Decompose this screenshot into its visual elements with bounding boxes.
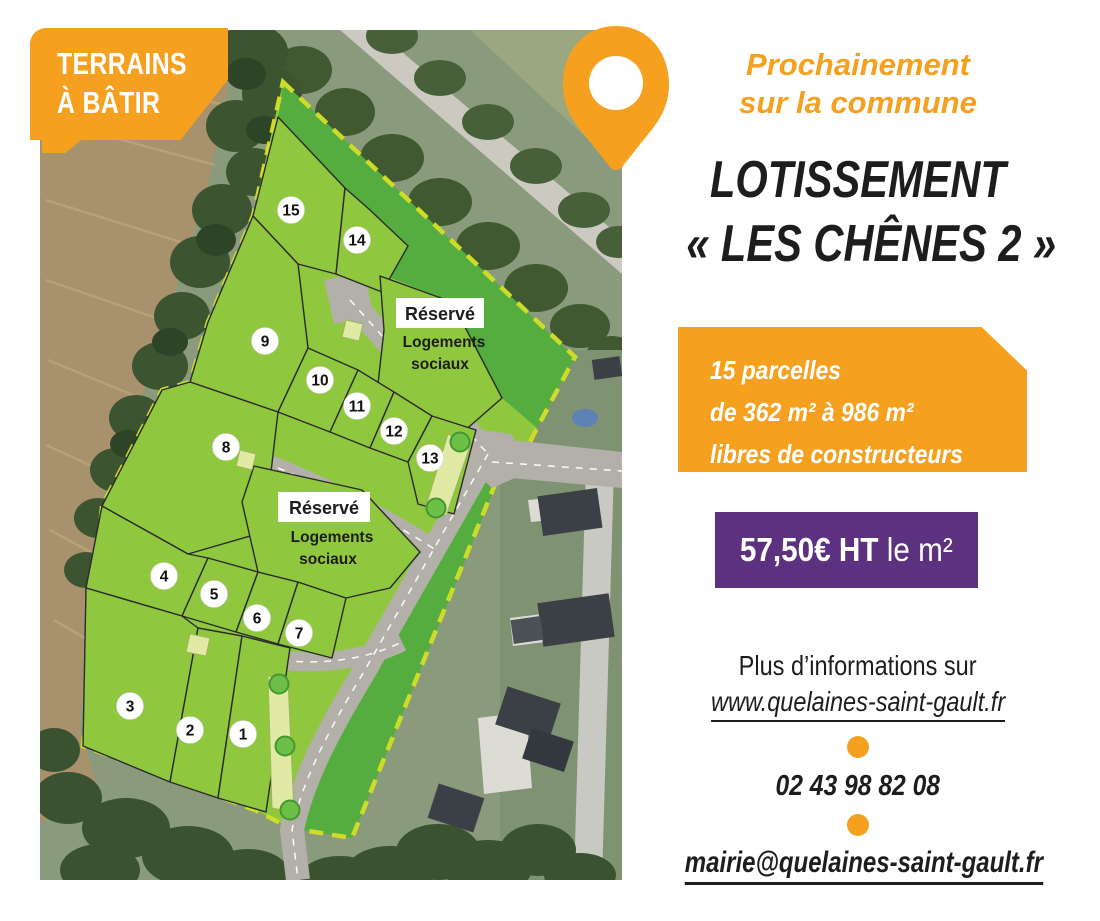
- parcel-number: 3: [126, 699, 135, 716]
- offer-box: 15 parcelles de 362 m² à 986 m² libres d…: [678, 327, 1027, 472]
- parcel-number: 15: [282, 203, 300, 220]
- website-link[interactable]: www.quelaines-saint-gault.fr: [640, 686, 1076, 722]
- parcel-number: 4: [160, 569, 169, 586]
- parcel-number: 7: [295, 626, 304, 643]
- site-map-svg: Réservé Logements sociaux Réservé Logeme…: [40, 30, 622, 880]
- kicker-line-1: Prochainement: [640, 46, 1076, 84]
- map-pin-icon: [556, 22, 676, 210]
- reserved-subtitle: sociaux: [299, 551, 357, 568]
- reserved-title: Réservé: [405, 304, 475, 324]
- price-text: 57,50€ HT le m²: [740, 531, 953, 569]
- title-line-2: « LES CHÊNES 2 »: [686, 212, 1056, 276]
- price-unit: le m²: [879, 531, 953, 568]
- parcel-number: 12: [385, 424, 402, 441]
- site-map: Réservé Logements sociaux Réservé Logeme…: [40, 30, 622, 880]
- tree-icon: [276, 737, 295, 756]
- tree-icon: [451, 433, 470, 452]
- parcel-number: 1: [239, 727, 248, 744]
- parcel-number: 8: [222, 440, 231, 457]
- kicker-line-2: sur la commune: [640, 84, 1076, 122]
- badge-line-2: À BÂTIR: [57, 83, 194, 122]
- flyer-page: { "badge": { "line1": "TERRAINS", "line2…: [0, 0, 1100, 921]
- offer-line-2: de 362 m² à 986 m²: [710, 391, 989, 433]
- pool: [572, 409, 598, 427]
- parcel-number: 6: [253, 611, 262, 628]
- email-link[interactable]: mairie@quelaines-saint-gault.fr: [640, 846, 1076, 885]
- badge-line-1: TERRAINS: [57, 44, 194, 83]
- kicker: Prochainement sur la commune: [640, 46, 1076, 122]
- parcel-number: 5: [210, 587, 219, 604]
- parcel-number: 10: [311, 373, 328, 390]
- info-panel: Prochainement sur la commune LOTISSEMENT…: [640, 0, 1076, 921]
- offer-line-3: libres de constructeurs: [710, 433, 989, 475]
- tree-icon: [281, 801, 300, 820]
- parcel-number: 9: [261, 334, 270, 351]
- parcel-number: 2: [186, 723, 195, 740]
- tree-icon: [270, 675, 289, 694]
- price-amount: 57,50€ HT: [740, 531, 879, 568]
- reserved-title: Réservé: [289, 498, 359, 518]
- parcel-number: 14: [348, 233, 366, 250]
- reserved-subtitle: sociaux: [411, 356, 469, 373]
- separator-dot-icon: [847, 814, 869, 836]
- parcel-number: 13: [421, 451, 439, 468]
- page-title: LOTISSEMENT « LES CHÊNES 2 »: [640, 148, 1076, 276]
- tree-icon: [427, 499, 446, 518]
- reserved-subtitle: Logements: [403, 334, 486, 351]
- parcel-number: 11: [349, 399, 366, 416]
- title-line-1: LOTISSEMENT: [710, 148, 1006, 212]
- price-box: 57,50€ HT le m²: [715, 512, 978, 588]
- phone-number: 02 43 98 82 08: [640, 770, 1076, 803]
- info-label: Plus d’informations sur: [640, 650, 1076, 682]
- offer-line-1: 15 parcelles: [710, 349, 989, 391]
- separator-dot-icon: [847, 736, 869, 758]
- reserved-subtitle: Logements: [291, 529, 374, 546]
